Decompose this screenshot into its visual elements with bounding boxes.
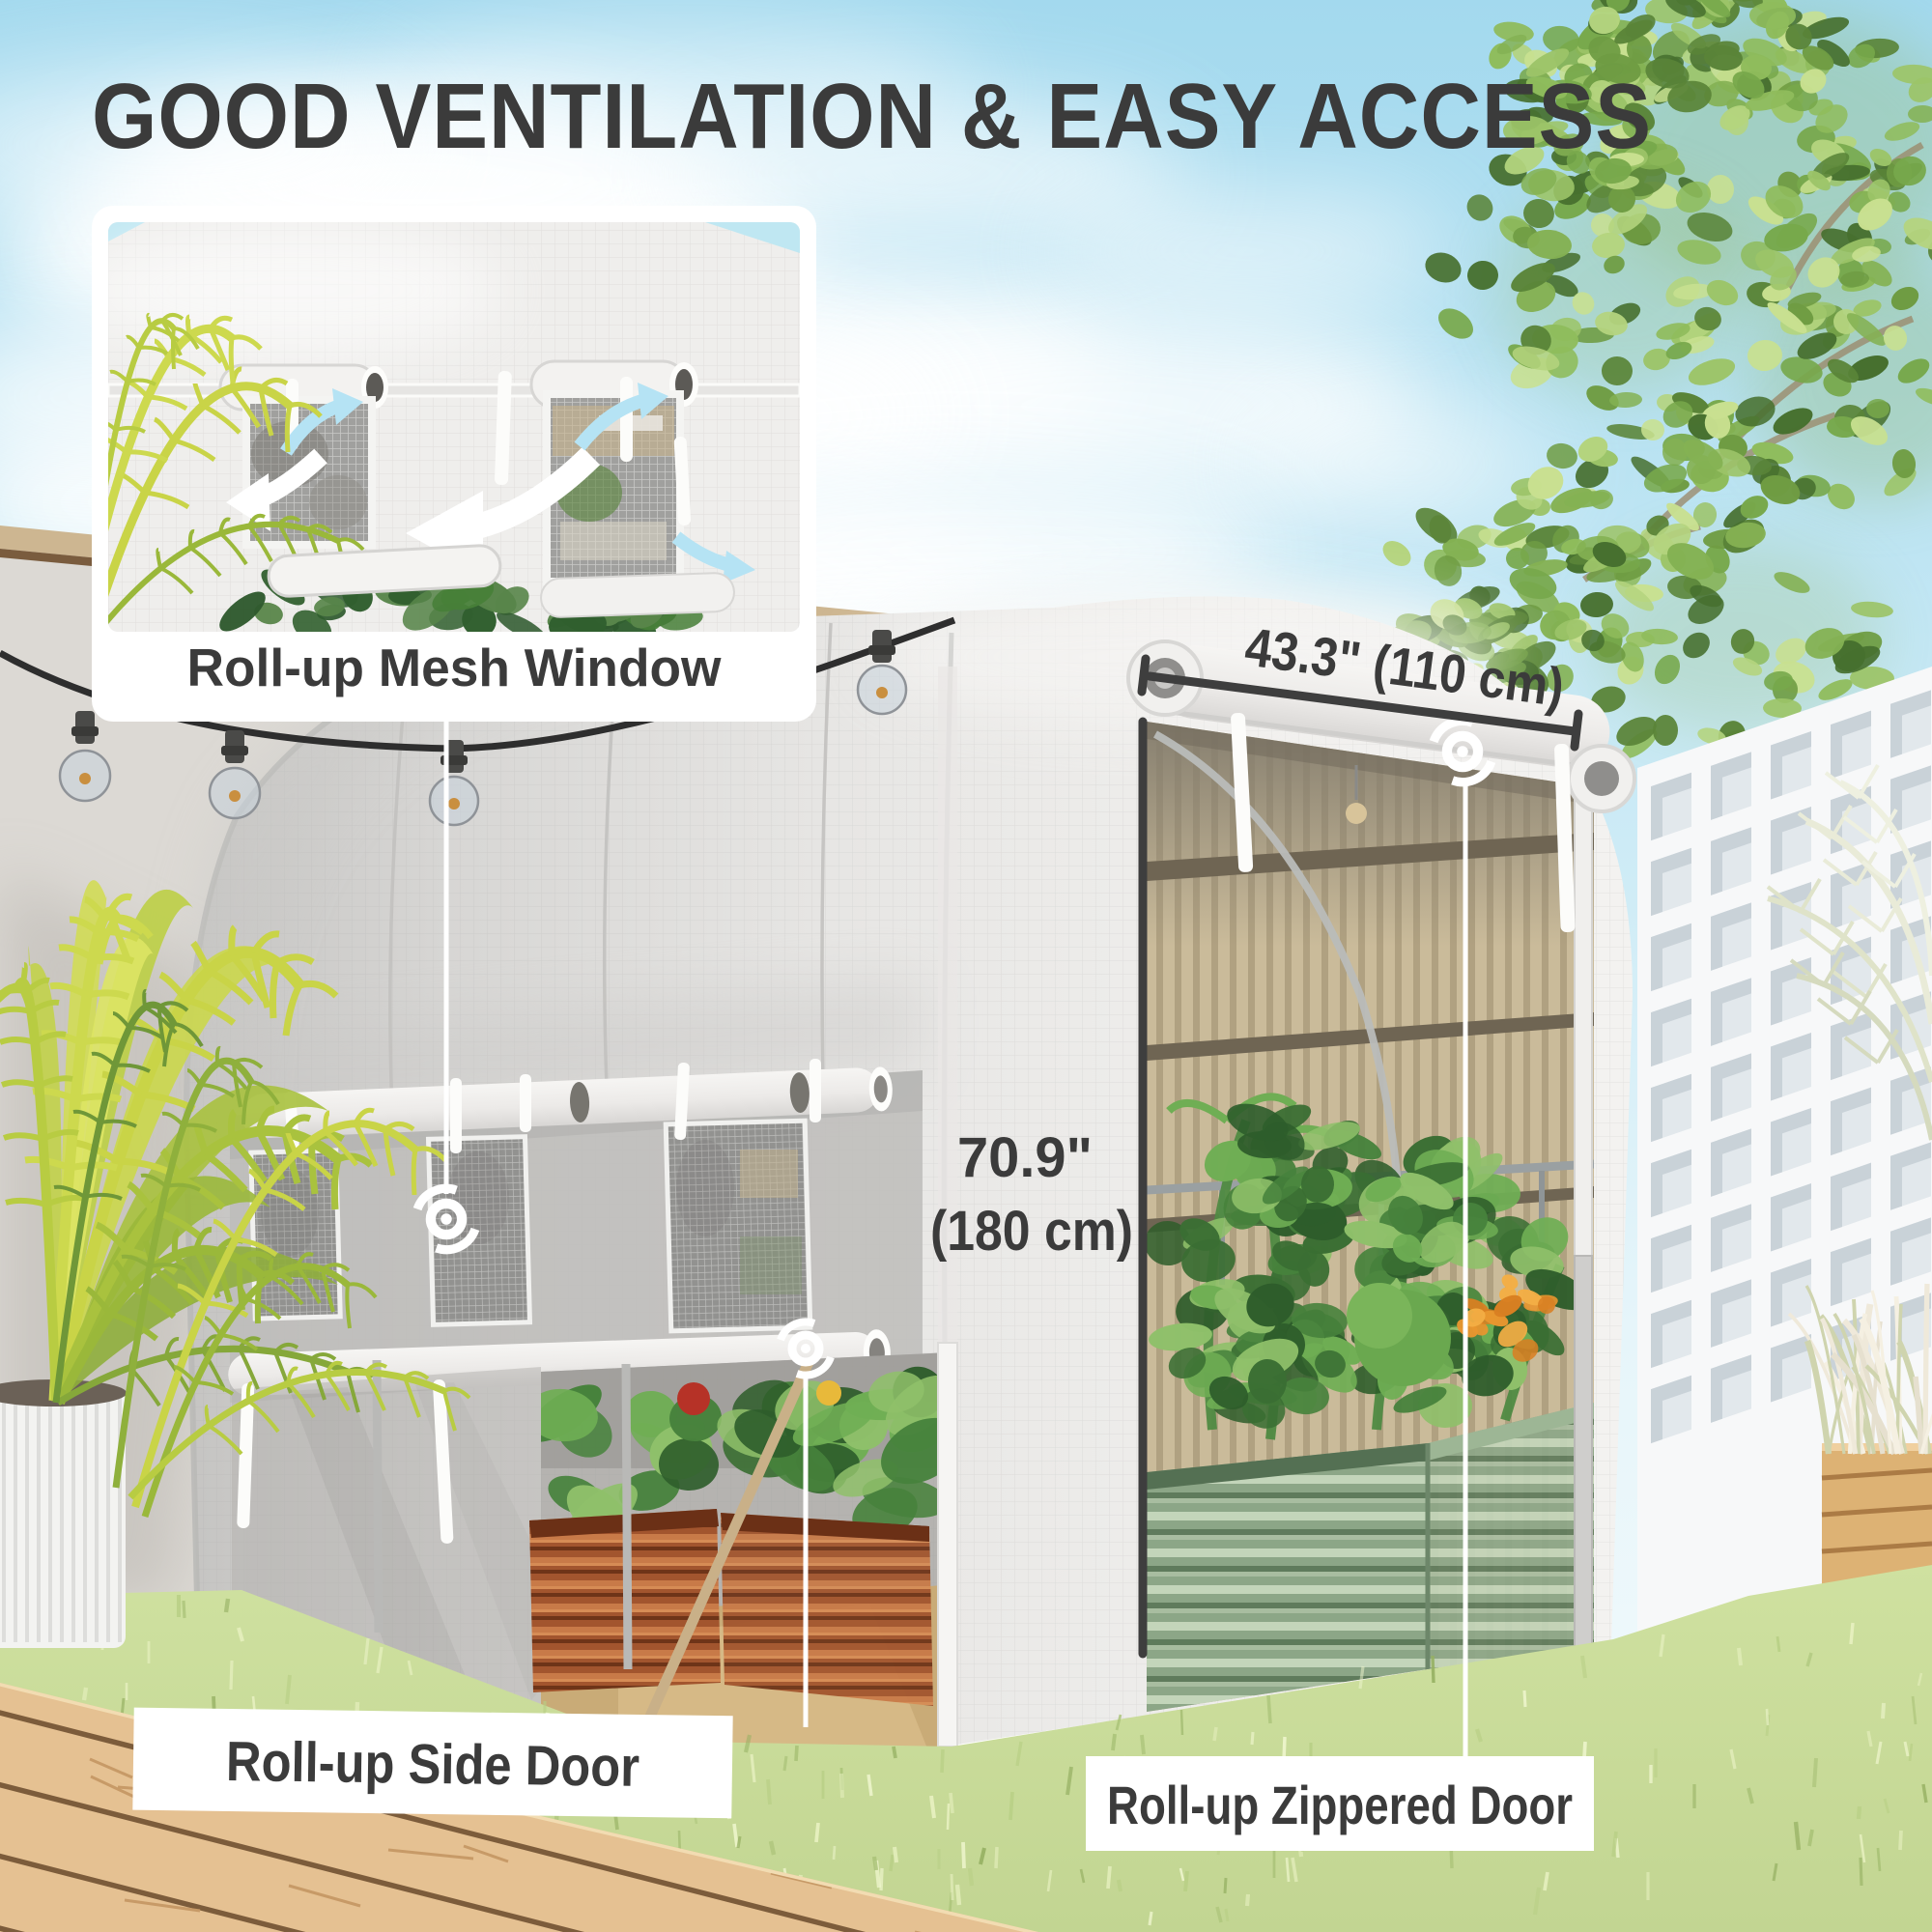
svg-text:70.9": 70.9" [957,1126,1093,1189]
svg-text:(180 cm): (180 cm) [930,1200,1133,1263]
svg-text:Roll-up Zippered Door: Roll-up Zippered Door [1107,1775,1573,1835]
svg-text:Roll-up Mesh Window: Roll-up Mesh Window [187,638,722,697]
svg-text:GOOD VENTILATION & EASY ACCESS: GOOD VENTILATION & EASY ACCESS [92,65,1652,168]
svg-text:Roll-up Side Door: Roll-up Side Door [226,1730,640,1799]
